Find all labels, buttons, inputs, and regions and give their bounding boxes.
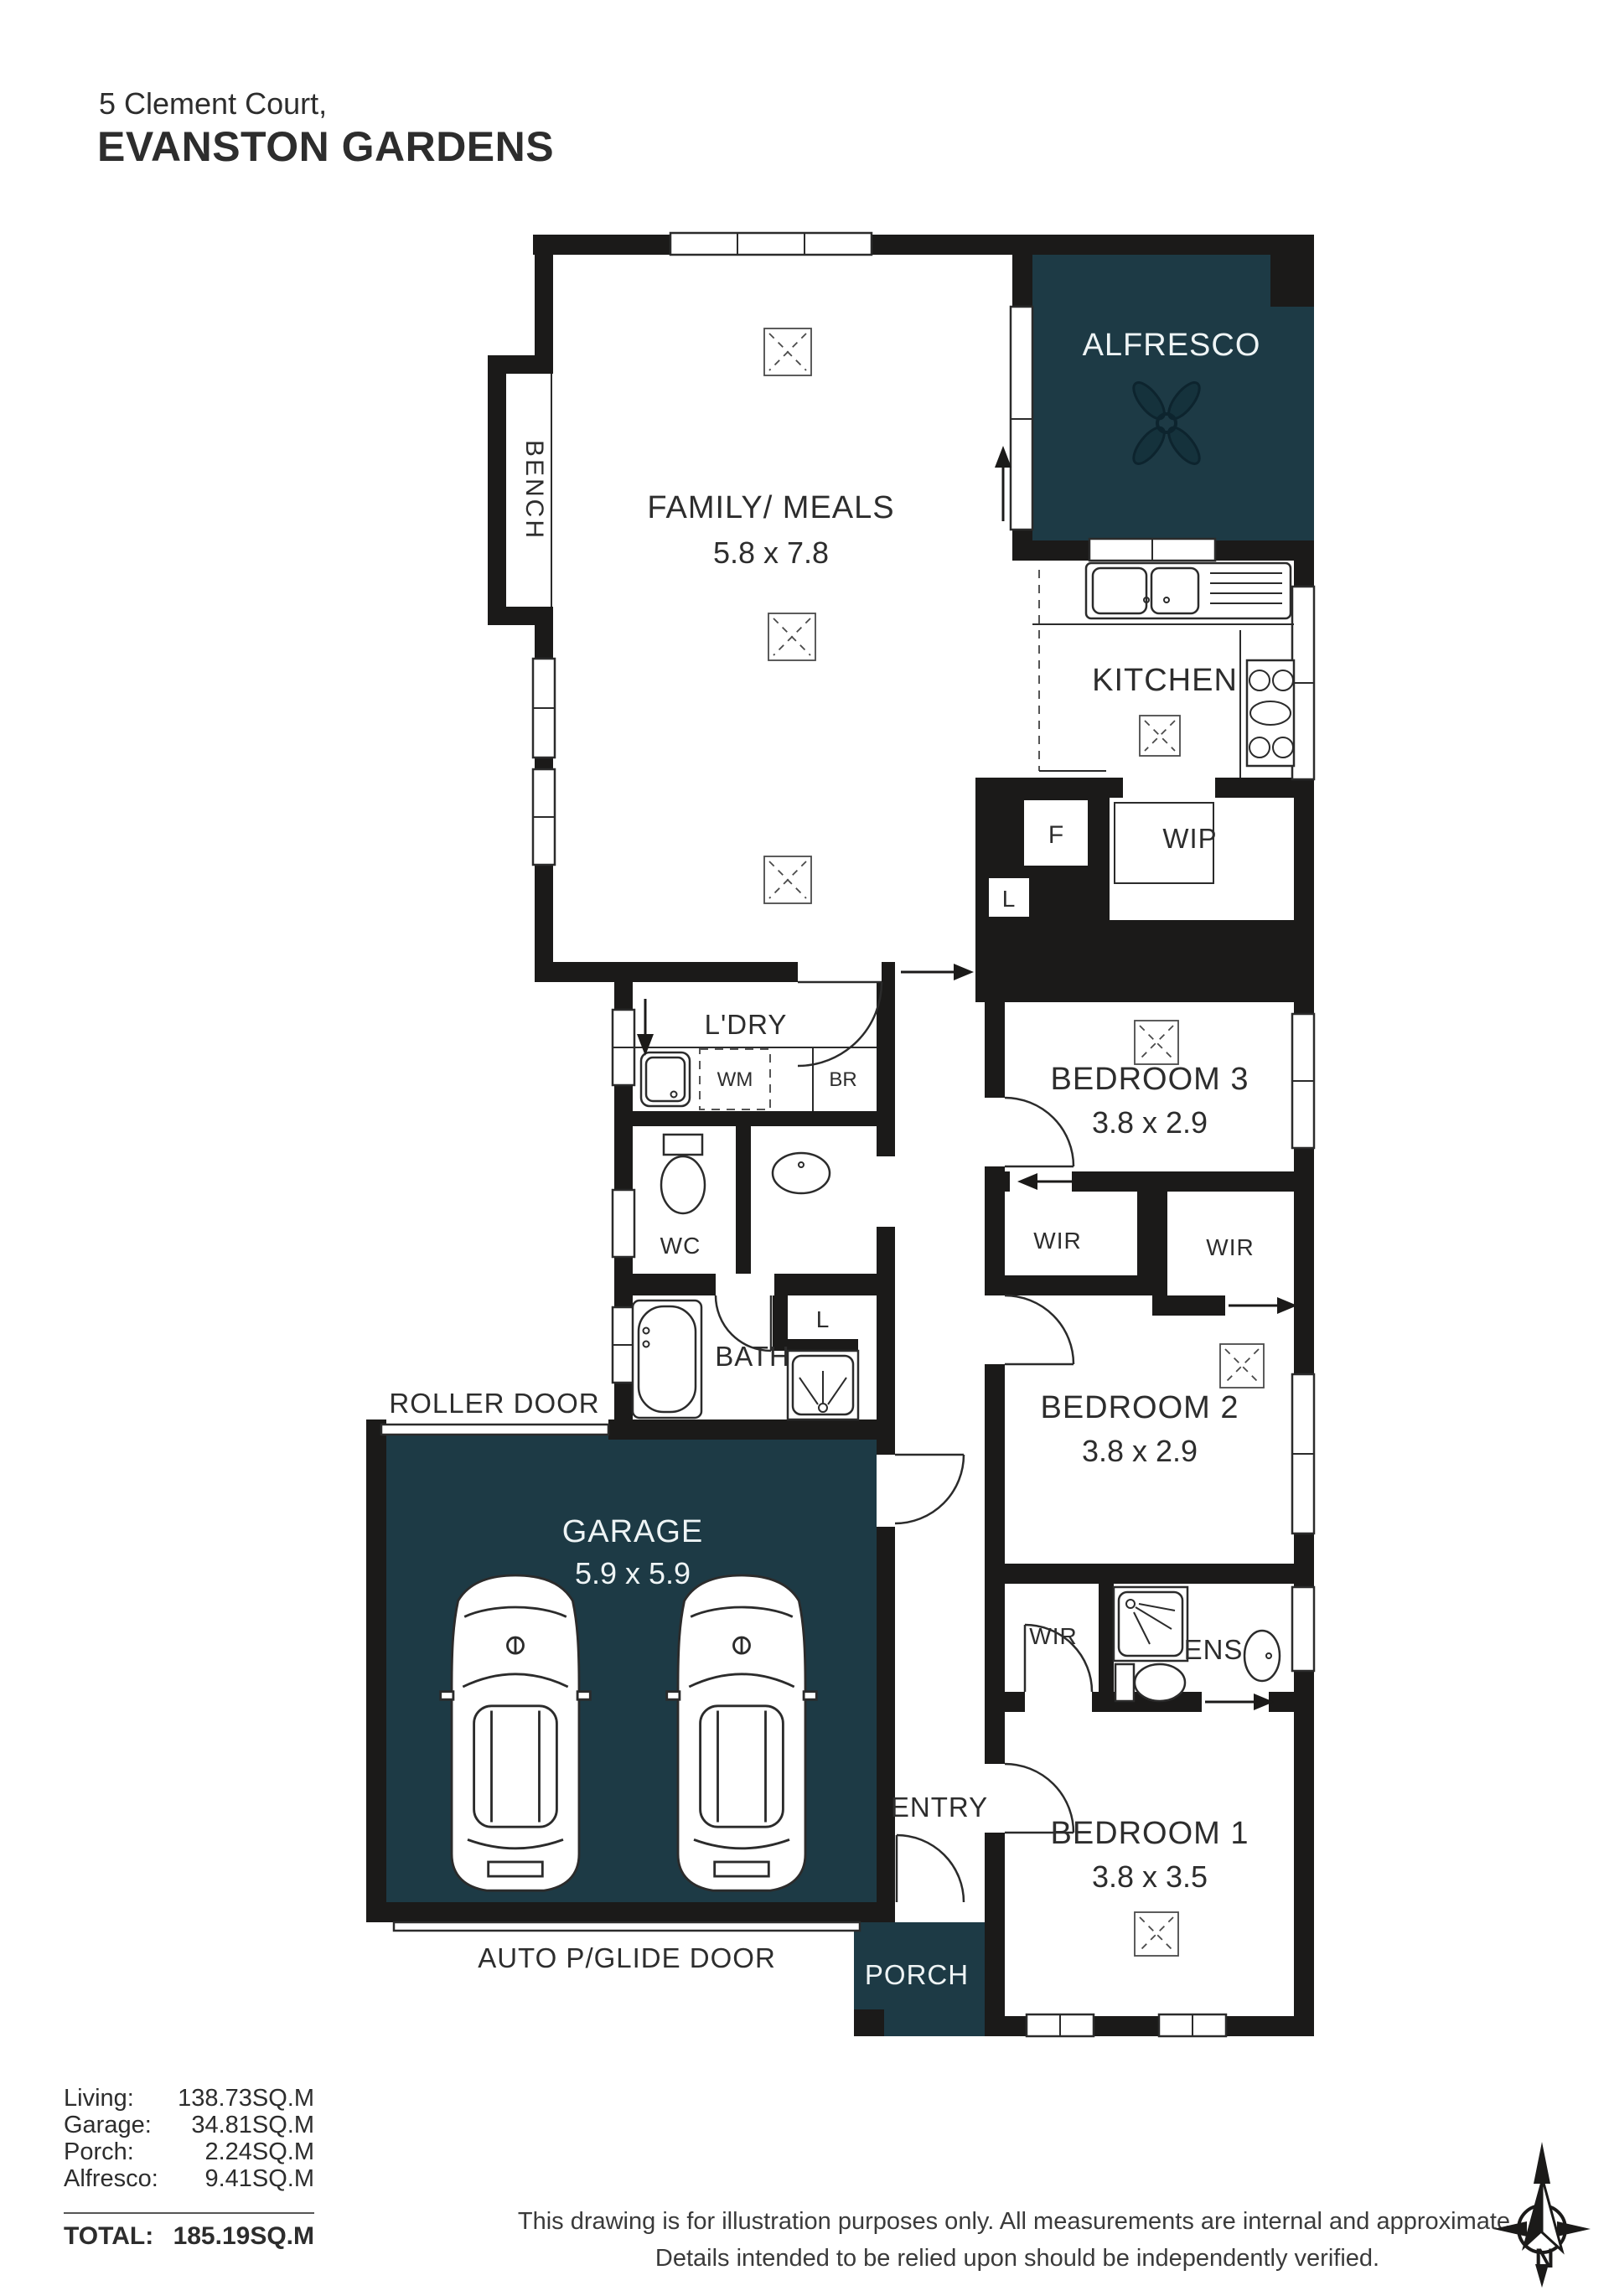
area-row-value: 138.73SQ.M <box>178 2085 314 2112</box>
area-total-label: TOTAL: <box>64 2222 153 2250</box>
area-row-label: Porch: <box>64 2138 134 2165</box>
window-family-left-2 <box>533 769 555 865</box>
ens-basin-icon <box>1244 1631 1280 1681</box>
room-label-kitchen: KITCHEN <box>1092 663 1238 698</box>
bed3-door <box>1005 1098 1074 1166</box>
area-total-value: 185.19SQ.M <box>173 2222 314 2250</box>
roller-door-panel <box>381 1425 608 1435</box>
window-bed2-right <box>1292 1374 1314 1533</box>
room-label-entry: ENTRY <box>891 1792 988 1823</box>
room-label-family: FAMILY/ MEALS <box>647 490 894 525</box>
room-label-bed1: BEDROOM 1 <box>1050 1816 1249 1851</box>
window-bed1-bottom-2 <box>1159 2014 1226 2036</box>
area-row-value: 9.41SQ.M <box>204 2165 314 2192</box>
powder-basin-icon <box>773 1153 830 1193</box>
area-row-label: Living: <box>64 2085 134 2112</box>
label-washing-machine: WM <box>717 1068 753 1091</box>
area-row-value: 34.81SQ.M <box>191 2112 314 2138</box>
bed2-door <box>1005 1295 1074 1364</box>
window-alfresco-bottom <box>1089 539 1215 561</box>
ens-shower-icon <box>1114 1587 1187 1661</box>
window-bath-left <box>613 1307 634 1383</box>
window-bed3-right <box>1292 1014 1314 1148</box>
window-wc-left <box>613 1190 634 1257</box>
label-auto-glide-door: AUTO P/GLIDE DOOR <box>478 1942 776 1973</box>
window-laundry-left <box>613 1010 634 1085</box>
room-label-laundry: L'DRY <box>705 1009 788 1040</box>
address-line2: EVANSTON GARDENS <box>97 123 554 170</box>
window-family-left-1 <box>533 659 555 758</box>
compass-label: N <box>1534 2243 1554 2273</box>
floorplan-page: 5 Clement Court, EVANSTON GARDENS <box>0 0 1609 2296</box>
room-label-wir-bed3: WIR <box>1033 1228 1081 1254</box>
room-label-wir-bed2: WIR <box>1206 1234 1254 1260</box>
room-label-linen-kitchen: L <box>1002 886 1017 912</box>
alfresco-arrow-up <box>995 446 1011 521</box>
car-icon-right <box>667 1575 817 1890</box>
room-label-alfresco: ALFRESCO <box>1083 328 1261 363</box>
room-label-porch: PORCH <box>865 1959 969 1990</box>
laundry-tub-icon <box>641 1052 690 1106</box>
window-bed1-bottom-1 <box>1027 2014 1094 2036</box>
room-label-wip: WIP <box>1162 823 1217 854</box>
area-row-label: Alfresco: <box>64 2165 158 2192</box>
room-label-wir-bed1: WIR <box>1029 1623 1077 1649</box>
area-table: Living: 138.73SQ.M Garage: 34.81SQ.M Por… <box>64 2085 314 2250</box>
room-label-bed3: BEDROOM 3 <box>1050 1062 1249 1097</box>
window-alfresco-divider <box>1011 307 1032 530</box>
room-dims-family: 5.8 x 7.8 <box>713 535 829 570</box>
window-family-top <box>670 233 872 255</box>
floorplan-drawing: 5 Clement Court, EVANSTON GARDENS <box>0 0 1609 2296</box>
bath-shower-icon <box>788 1351 858 1419</box>
bathtub-icon <box>633 1301 701 1418</box>
disclaimer: This drawing is for illustration purpose… <box>518 2208 1517 2272</box>
room-label-fridge: F <box>1048 821 1063 849</box>
room-label-bed2: BEDROOM 2 <box>1040 1390 1239 1425</box>
garage-internal-door <box>895 1455 964 1523</box>
ens-toilet-icon <box>1115 1664 1185 1701</box>
disclaimer-line2: Details intended to be relied upon shoul… <box>655 2245 1379 2272</box>
room-dims-bed1: 3.8 x 3.5 <box>1092 1859 1208 1894</box>
auto-glide-door-panel <box>394 1922 860 1931</box>
address-line1: 5 Clement Court, <box>99 86 327 121</box>
kitchen-sink-icon <box>1086 563 1291 618</box>
room-label-ens: ENS <box>1184 1634 1244 1665</box>
laundry-door <box>798 982 882 1066</box>
room-label-wc: WC <box>660 1233 701 1259</box>
room-label-linen-bath: L <box>816 1306 830 1332</box>
area-row-label: Garage: <box>64 2112 152 2138</box>
car-icon-left <box>441 1575 591 1890</box>
label-roller-door: ROLLER DOOR <box>389 1388 599 1419</box>
room-label-bench: BENCH <box>520 440 548 540</box>
room-dims-bed2: 3.8 x 2.9 <box>1082 1434 1198 1468</box>
room-label-bath: BATH <box>715 1341 790 1372</box>
window-kitchen-right <box>1292 587 1314 779</box>
label-broom: BR <box>829 1068 856 1091</box>
hall-arrow-right <box>901 964 974 980</box>
disclaimer-line1: This drawing is for illustration purpose… <box>518 2208 1517 2235</box>
wc-toilet-icon <box>661 1135 705 1213</box>
window-ens-right <box>1292 1587 1314 1671</box>
area-row-value: 2.24SQ.M <box>204 2138 314 2165</box>
entry-front-door <box>897 1835 964 1902</box>
room-label-garage: GARAGE <box>562 1514 704 1549</box>
cooktop-icon <box>1247 660 1294 766</box>
room-dims-bed3: 3.8 x 2.9 <box>1092 1105 1208 1140</box>
room-dims-garage: 5.9 x 5.9 <box>575 1556 691 1590</box>
